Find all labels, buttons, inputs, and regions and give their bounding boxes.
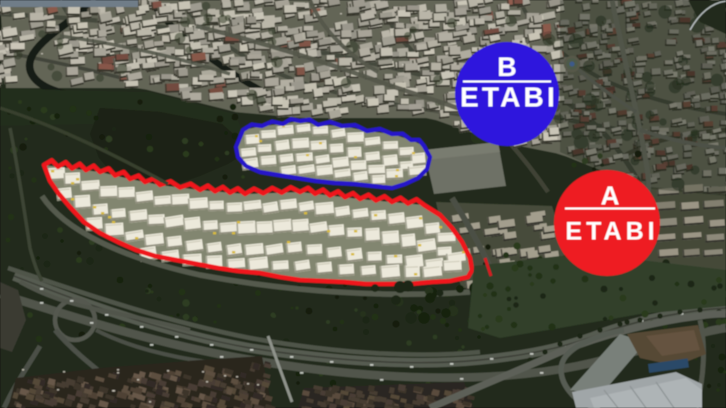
svg-text:ETABI: ETABI xyxy=(460,82,558,113)
svg-text:ETABI: ETABI xyxy=(565,218,658,246)
svg-text:B: B xyxy=(497,52,517,82)
svg-text:A: A xyxy=(601,181,620,211)
